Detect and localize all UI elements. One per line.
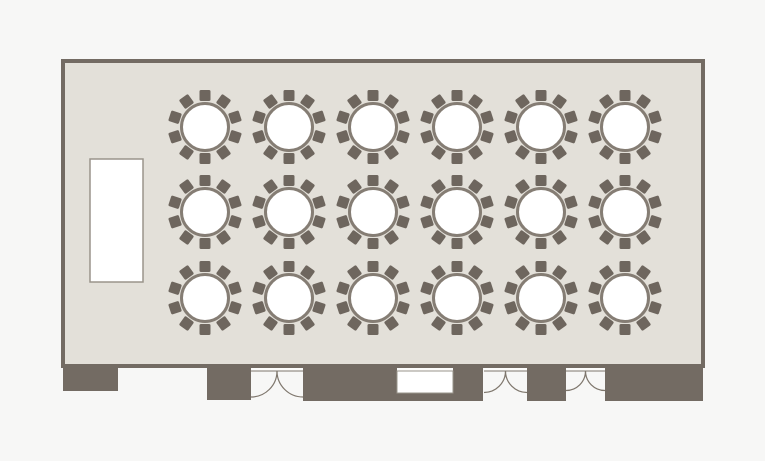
table-top (434, 104, 481, 151)
table-top (182, 104, 229, 151)
chair (536, 175, 547, 186)
wall-segment-3 (303, 366, 483, 401)
floor-plan-page (0, 0, 765, 461)
chair (452, 175, 463, 186)
chair (368, 324, 379, 335)
table-top (518, 275, 565, 322)
table-top (434, 189, 481, 236)
chair (368, 261, 379, 272)
table-top (266, 104, 313, 151)
chair (620, 90, 631, 101)
table-top (350, 275, 397, 322)
wall-segment-5 (605, 366, 703, 401)
table-top (434, 275, 481, 322)
chair (536, 261, 547, 272)
chair (452, 261, 463, 272)
chair (200, 90, 211, 101)
chair (368, 175, 379, 186)
chair (452, 324, 463, 335)
chair (200, 175, 211, 186)
chair (620, 238, 631, 249)
chair (536, 90, 547, 101)
chair (200, 324, 211, 335)
table-top (266, 189, 313, 236)
chair (368, 90, 379, 101)
table-top (182, 275, 229, 322)
chair (200, 261, 211, 272)
floor-plan (0, 0, 765, 461)
chair (620, 175, 631, 186)
chair (284, 153, 295, 164)
table-top (602, 189, 649, 236)
chair (536, 324, 547, 335)
table-top (350, 104, 397, 151)
table-top (518, 189, 565, 236)
table-top (266, 275, 313, 322)
table-top (602, 104, 649, 151)
wall-segment-4 (527, 366, 566, 401)
chair (368, 153, 379, 164)
chair (200, 238, 211, 249)
chair (284, 238, 295, 249)
wall-segment-2 (207, 366, 251, 400)
chair (200, 153, 211, 164)
chair (452, 153, 463, 164)
chair (536, 153, 547, 164)
table-top (182, 189, 229, 236)
chair (620, 153, 631, 164)
table-top (518, 104, 565, 151)
chair (452, 90, 463, 101)
stage-rectangle[interactable] (90, 159, 143, 282)
table-top (602, 275, 649, 322)
chair (368, 238, 379, 249)
service-window (397, 371, 453, 393)
chair (620, 324, 631, 335)
chair (284, 324, 295, 335)
chair (284, 90, 295, 101)
chair (620, 261, 631, 272)
table-top (350, 189, 397, 236)
chair (284, 261, 295, 272)
chair (284, 175, 295, 186)
chair (452, 238, 463, 249)
chair (536, 238, 547, 249)
wall-segment-1 (63, 366, 118, 391)
